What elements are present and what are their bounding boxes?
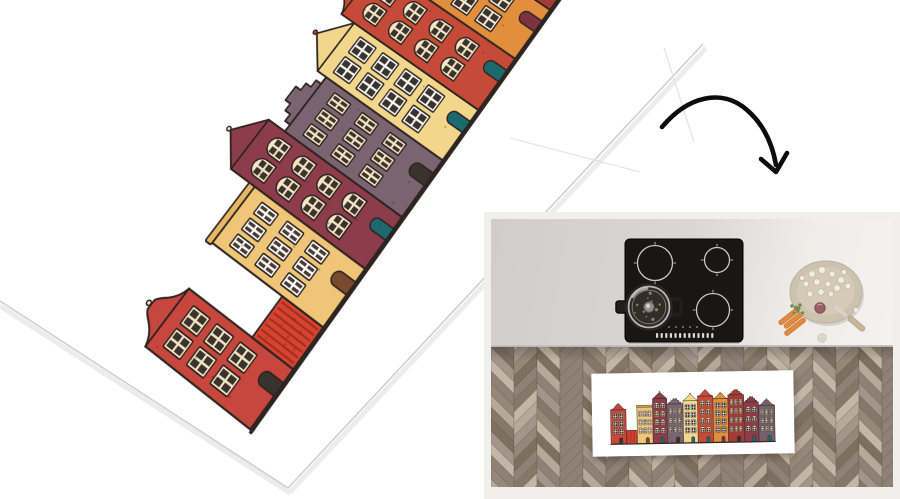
canal-houses-print-mat (608, 381, 777, 447)
red-onion (815, 303, 825, 313)
counter-shadow-on-floor (491, 347, 893, 361)
serving-board (776, 239, 866, 343)
kitchen-photo (491, 219, 893, 487)
kitchen-photo-frame (484, 212, 900, 499)
kitchen-mat (591, 370, 794, 457)
countertop-items (491, 219, 893, 351)
product-mockup (0, 0, 900, 499)
herringbone-floor (491, 347, 893, 487)
